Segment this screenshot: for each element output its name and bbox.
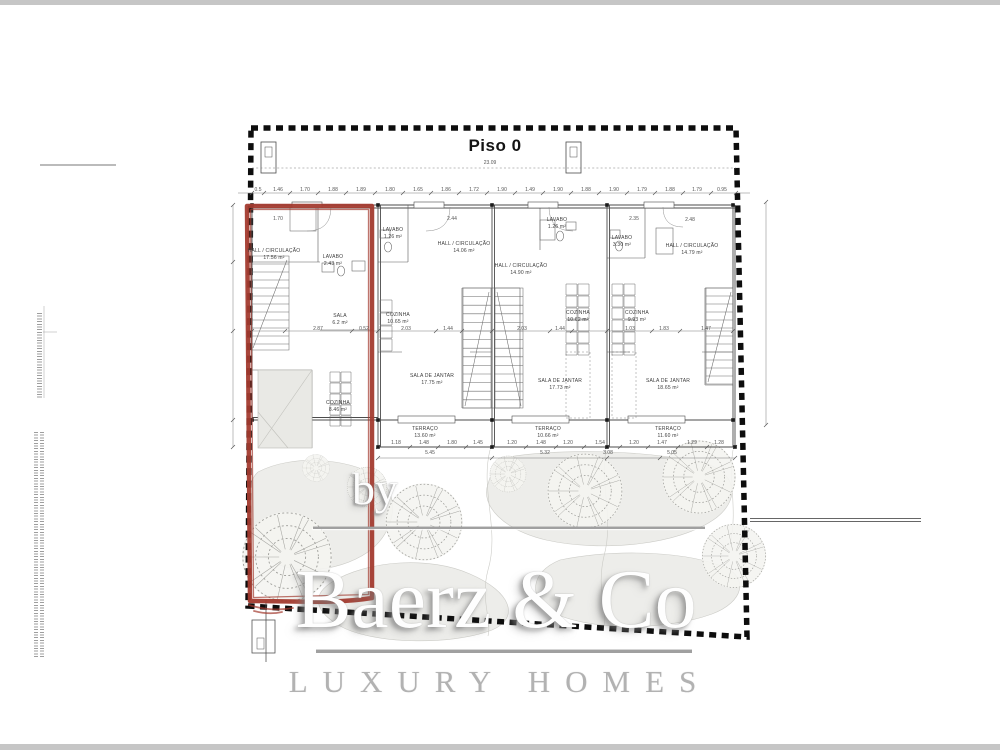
- door-swing-arcs: [307, 207, 683, 231]
- plan-title: Piso 0: [430, 136, 560, 156]
- bathroom-fixtures: [322, 220, 673, 276]
- watermark-brand: Baerz & Co: [295, 551, 696, 648]
- tree-icon: [302, 454, 330, 482]
- wall-junction-markers: [250, 203, 737, 449]
- tree-icon: [490, 456, 527, 493]
- interior-walls: [252, 205, 733, 448]
- tree-icon: [662, 440, 736, 514]
- tree-icon: [547, 453, 622, 528]
- watermark-by: by: [352, 462, 398, 515]
- vertical-fine-print: [37, 313, 42, 398]
- vertical-fine-print: [40, 432, 44, 658]
- watermark-tagline: LUXURY HOMES: [289, 664, 712, 700]
- watermark-rule-bottom: [316, 650, 692, 653]
- tree-icon: [702, 524, 766, 588]
- floor-plan-page: Piso 0 HALL / CIRCULAÇÃO17.56 m²LAVABO2.…: [0, 0, 1000, 750]
- watermark-rule-top: [313, 527, 705, 529]
- building-walls: [252, 205, 735, 447]
- vertical-fine-print: [34, 432, 38, 658]
- dimension-lines: [40, 165, 921, 522]
